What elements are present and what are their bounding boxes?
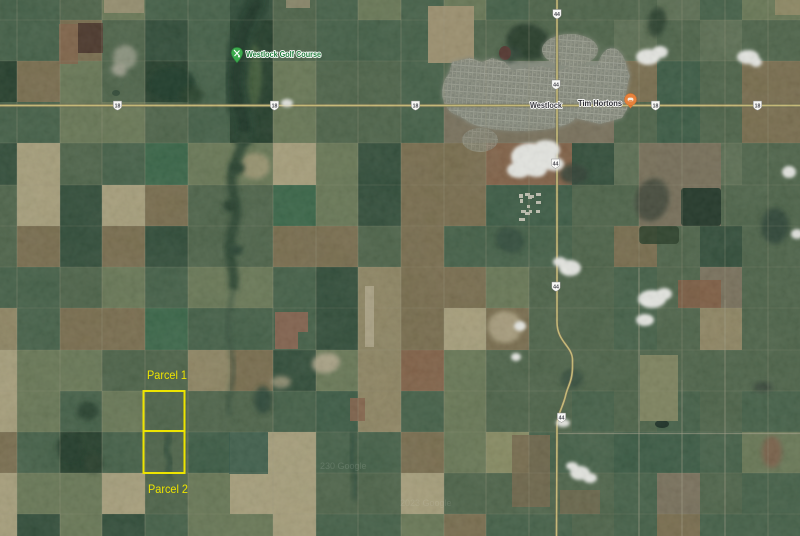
svg-text:Parcel 2: Parcel 2 — [148, 482, 188, 496]
svg-text:44: 44 — [554, 12, 560, 18]
svg-text:18: 18 — [653, 103, 659, 109]
svg-text:230 Google: 230 Google — [320, 461, 367, 471]
svg-text:Westlock: Westlock — [530, 100, 562, 110]
svg-text:Tim Hortons: Tim Hortons — [578, 98, 622, 108]
svg-text:18: 18 — [413, 103, 419, 109]
svg-text:44: 44 — [553, 284, 559, 290]
svg-text:18: 18 — [115, 103, 121, 109]
svg-text:Parcel 1: Parcel 1 — [147, 368, 187, 382]
svg-text:2023 Google: 2023 Google — [400, 498, 452, 508]
svg-text:44: 44 — [553, 82, 559, 88]
svg-text:44: 44 — [553, 161, 559, 167]
svg-text:18: 18 — [755, 103, 761, 109]
svg-text:18: 18 — [272, 103, 278, 109]
svg-text:44: 44 — [559, 415, 565, 421]
svg-text:Westlock Golf Course: Westlock Golf Course — [246, 50, 321, 59]
